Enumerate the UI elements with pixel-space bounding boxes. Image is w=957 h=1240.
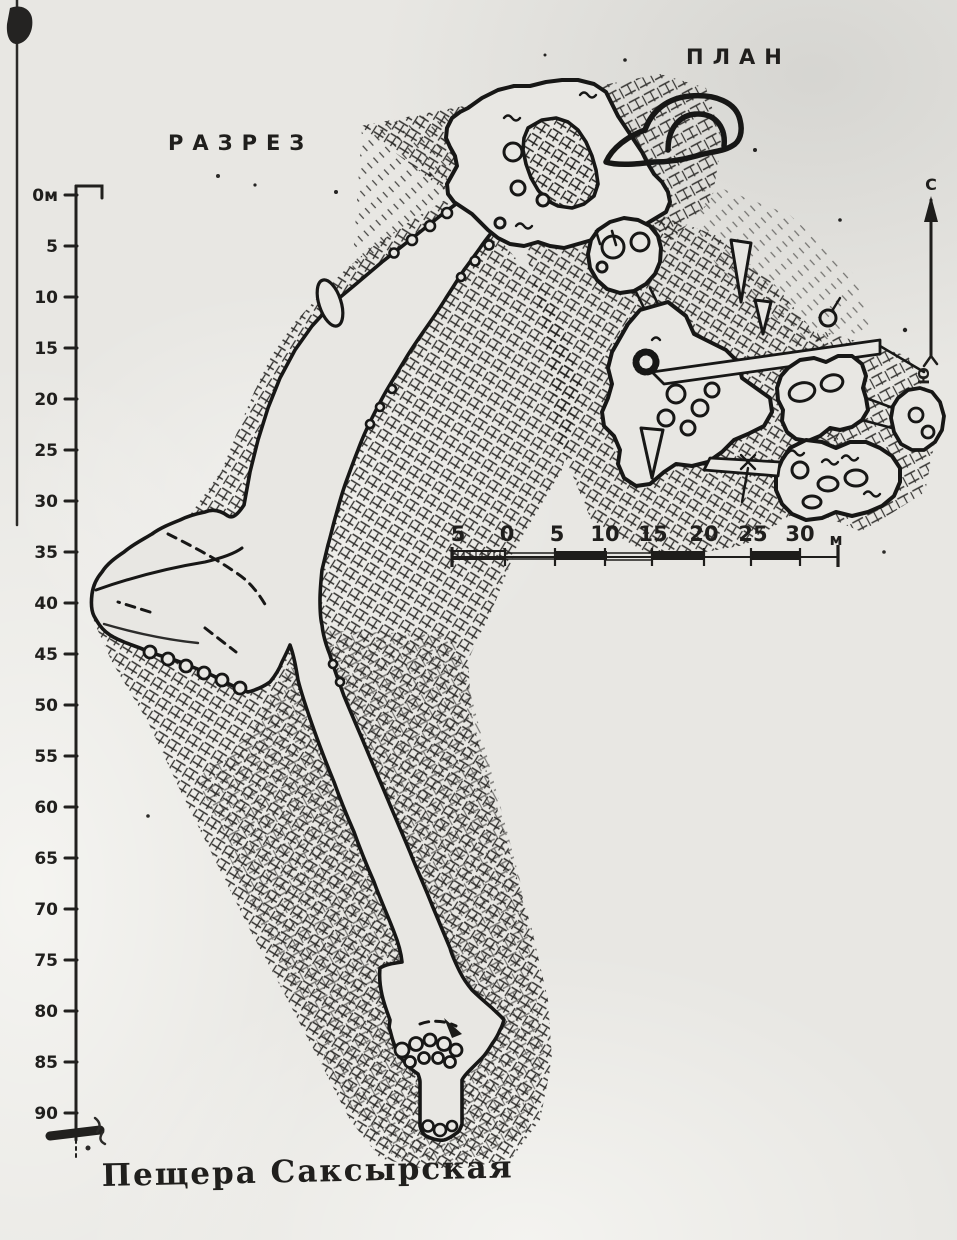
svg-text:85: 85: [34, 1053, 58, 1073]
depth-scale-ruler: 0м 5 10 15 20 25 30 35 40 45 50 55 60 65…: [32, 186, 102, 1158]
scale-bar-labels: 5 0 5 10 15 20 25 30 м: [451, 522, 843, 549]
svg-text:60: 60: [34, 798, 58, 818]
north-label: С: [925, 175, 937, 194]
scale-bar-unit: м: [829, 530, 842, 549]
svg-text:0: 0: [500, 522, 515, 546]
depth-scale-top-bracket: [76, 186, 102, 198]
map-caption: Пещера Саксырская: [101, 1149, 514, 1194]
svg-text:35: 35: [34, 543, 58, 563]
svg-text:25: 25: [738, 522, 767, 546]
south-label: Ю: [915, 367, 933, 385]
svg-text:20: 20: [34, 390, 58, 410]
corner-ink-blob: [7, 6, 33, 44]
bottom-left-dot: [86, 1146, 91, 1151]
svg-text:40: 40: [34, 594, 58, 614]
north-arrow: С Ю: [915, 175, 938, 385]
svg-text:5: 5: [46, 237, 58, 257]
svg-text:30: 30: [34, 492, 58, 512]
svg-text:65: 65: [34, 849, 58, 869]
svg-text:15: 15: [638, 522, 667, 546]
north-arrow-tail-fork: [924, 356, 937, 366]
svg-text:5: 5: [451, 522, 466, 546]
svg-text:10: 10: [590, 522, 619, 546]
plan-label: ПЛАН: [686, 45, 791, 69]
cave-map-scan: РАЗРЕЗ: [0, 0, 957, 1240]
scale-bar-solid-segments: [555, 551, 800, 560]
svg-text:45: 45: [34, 645, 58, 665]
svg-text:55: 55: [34, 747, 58, 767]
svg-text:90: 90: [34, 1104, 58, 1124]
junction-gear-boulder: [636, 352, 656, 372]
svg-text:0м: 0м: [32, 186, 58, 206]
svg-text:15: 15: [34, 339, 58, 359]
svg-text:25: 25: [34, 441, 58, 461]
stray-dot-2: [146, 814, 150, 818]
svg-text:75: 75: [34, 951, 58, 971]
svg-text:5: 5: [550, 522, 565, 546]
stray-dot-1: [216, 174, 220, 178]
svg-text:80: 80: [34, 1002, 58, 1022]
svg-text:50: 50: [34, 696, 58, 716]
stray-dot-3: [882, 550, 886, 554]
plan-second-chamber: [588, 218, 661, 293]
svg-text:70: 70: [34, 900, 58, 920]
svg-text:10: 10: [34, 288, 58, 308]
scanned-cave-map-page: РАЗРЕЗ: [0, 0, 957, 1240]
svg-text:20: 20: [689, 522, 718, 546]
depth-scale-bottom-bar: [50, 1130, 100, 1136]
svg-text:30: 30: [785, 522, 814, 546]
section-label: РАЗРЕЗ: [168, 131, 313, 155]
depth-scale-labels: 0м 5 10 15 20 25 30 35 40 45 50 55 60 65…: [32, 186, 58, 1124]
north-arrow-head: [924, 196, 938, 222]
